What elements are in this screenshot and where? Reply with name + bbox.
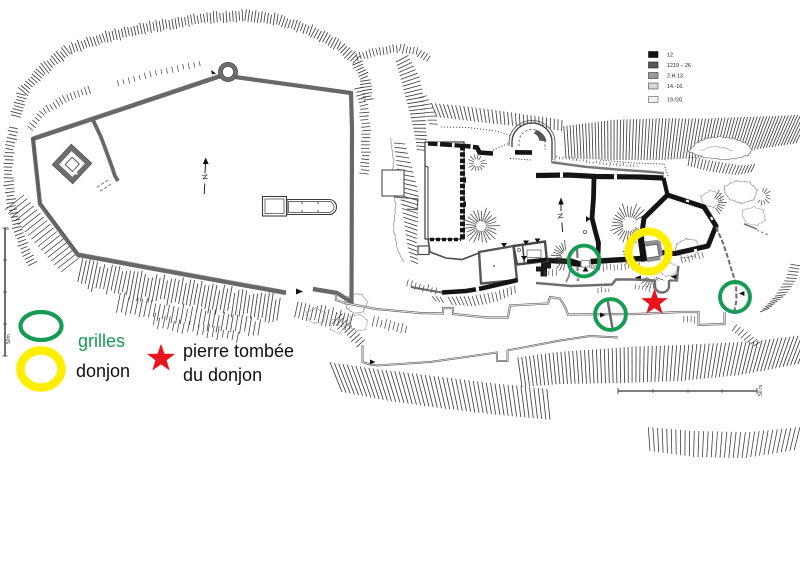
svg-text:du donjon: du donjon (183, 365, 262, 385)
svg-text:19./20.: 19./20. (667, 98, 684, 104)
svg-text:50 m: 50 m (758, 385, 764, 396)
svg-text:pierre tombée: pierre tombée (183, 341, 294, 361)
svg-text:grilles: grilles (78, 331, 125, 351)
svg-text:50m: 50m (6, 334, 12, 344)
svg-text:2.H.13.: 2.H.13. (667, 74, 684, 80)
svg-text:donjon: donjon (76, 361, 130, 381)
svg-text:0: 0 (5, 227, 11, 230)
svg-text:12.: 12. (667, 53, 675, 59)
svg-text:14.-16.: 14.-16. (667, 84, 684, 90)
svg-text:1219 – 26: 1219 – 26 (667, 63, 691, 69)
